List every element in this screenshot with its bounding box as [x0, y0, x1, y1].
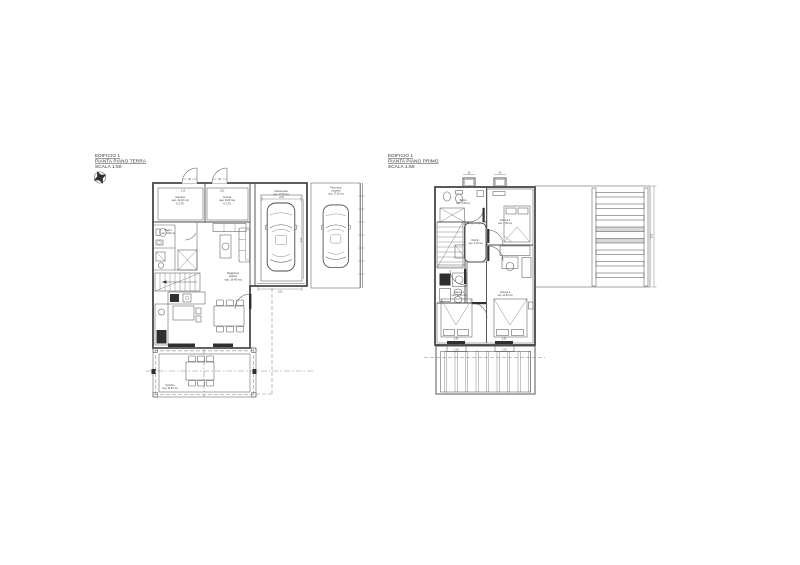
garage-depth-dim: 5,00: [301, 237, 303, 242]
garage-width-dim: 2,50: [279, 197, 284, 199]
vent-dim-1: 60: [468, 173, 471, 175]
first-subtitle: PIANTA PIANO PRIMO: [388, 158, 439, 163]
disimpegno-area: sup. 3,20 mq: [469, 242, 483, 245]
first-floor-title-block: EDIFICIO 1 PIANTA PIANO PRIMO SCALA 1:50: [388, 153, 439, 169]
camera3-room: Camera 3 sup. 7,50 mq: [487, 192, 530, 246]
bed-camera1: [441, 299, 472, 337]
living-room: Soggiorno pranzo sup. 26,40 mq: [168, 224, 252, 348]
pergola-slats: [596, 193, 644, 278]
balcony-door-dim-2: 1,20: [502, 350, 507, 352]
terrazzo-area: sup. 16,50 mq: [162, 387, 178, 390]
autorimessa-area: sup. 17,30 mq: [273, 193, 289, 196]
first-exterior-walls: [435, 187, 535, 345]
sofa: [239, 228, 250, 262]
cucina-height: h 2,70: [223, 201, 231, 205]
posto-auto-area: sup. 17,00 mq: [328, 193, 344, 196]
first-bathroom-bottom: [440, 269, 467, 303]
camera2-area: sup. 11,80 mq: [498, 294, 514, 297]
bed-camera2: [494, 299, 527, 337]
first-scale: SCALA 1:50: [388, 164, 415, 169]
room-cucina: Cucina sup. 9,20 mq h 2,70 1,52: [207, 188, 248, 220]
cucina-width-dim: 1,52: [220, 191, 225, 193]
fence-ticks: [359, 196, 365, 274]
first-floor-plan: EDIFICIO 1 PIANTA PIANO PRIMO SCALA 1:50…: [388, 153, 657, 394]
camera3-area: sup. 7,50 mq: [498, 222, 512, 225]
roof-vents: 60 60: [463, 173, 506, 188]
balcony-door-dim-1: 1,20: [454, 350, 459, 352]
landing: Disimp. sup. 3,20 mq: [465, 222, 487, 263]
camera1-room: Camera 1 sup. 11,60 mq: [441, 291, 487, 337]
ground-floor-title-block: EDIFICIO 1 PIANTA PIANO TERRA SCALA 1:50: [91, 153, 147, 187]
bathtub: [440, 208, 465, 222]
bagno1-area: sup. 4,40 mq: [456, 202, 470, 205]
car-parking: [321, 205, 350, 268]
ground-floor-plan: EDIFICIO 1 PIANTA PIANO TERRA SCALA 1:50: [91, 153, 365, 397]
dining-table: [214, 300, 244, 332]
balcony: [424, 346, 545, 394]
camera3-fill: [487, 189, 533, 245]
floorplan-drawing: EDIFICIO 1 PIANTA PIANO TERRA SCALA 1:50: [0, 0, 800, 565]
first-bathroom-top: Bagno sup. 4,40 mq: [440, 191, 485, 223]
garage-door-dim: 2,50: [278, 292, 283, 294]
camera1-area: sup. 11,60 mq: [452, 294, 468, 297]
room-camera: Camera sup. 11,10 mq h 2,70 1,15: [158, 188, 203, 220]
shower: [178, 250, 197, 270]
first-title: EDIFICIO 1: [388, 153, 414, 158]
tv-cabinet: [220, 235, 231, 258]
room1-width-dim: 2,96: [454, 339, 459, 341]
camera-width-dim: 1,15: [181, 191, 186, 193]
vent-dim-2: 60: [499, 173, 502, 175]
drawing-sheet: EDIFICIO 1 PIANTA PIANO TERRA SCALA 1:50: [0, 0, 800, 565]
ground-subtitle: PIANTA PIANO TERRA: [95, 158, 147, 163]
camera2-room: Camera 2 sup. 11,80 mq: [487, 246, 533, 337]
parking-spot: Posto auto scoperto sup. 17,00 mq: [311, 183, 365, 288]
car-garage: [265, 203, 297, 271]
first-interior-walls: [437, 187, 533, 343]
boundary-lines: [146, 288, 315, 397]
kitchen: [155, 292, 205, 345]
north-arrow-icon: [91, 168, 110, 187]
first-staircase: [437, 222, 465, 268]
garage: Autorimessa sup. 17,30 mq 2,50 5,00 2,50: [257, 190, 305, 294]
bagno-area: sup. 3,90 mq: [161, 232, 175, 235]
pergola: 5,05: [535, 186, 657, 287]
desk-camera2: [502, 257, 518, 271]
soggiorno-area: sup. 26,40 mq: [224, 277, 242, 281]
ground-title: EDIFICIO 1: [95, 153, 121, 158]
room2-width-dim: 2,96: [502, 339, 507, 341]
camera-height: h 2,70: [176, 201, 184, 205]
terrace-depth-dim: 5,05: [652, 233, 654, 238]
ground-scale: SCALA 1:50: [95, 164, 122, 169]
ground-staircase: [155, 273, 200, 291]
